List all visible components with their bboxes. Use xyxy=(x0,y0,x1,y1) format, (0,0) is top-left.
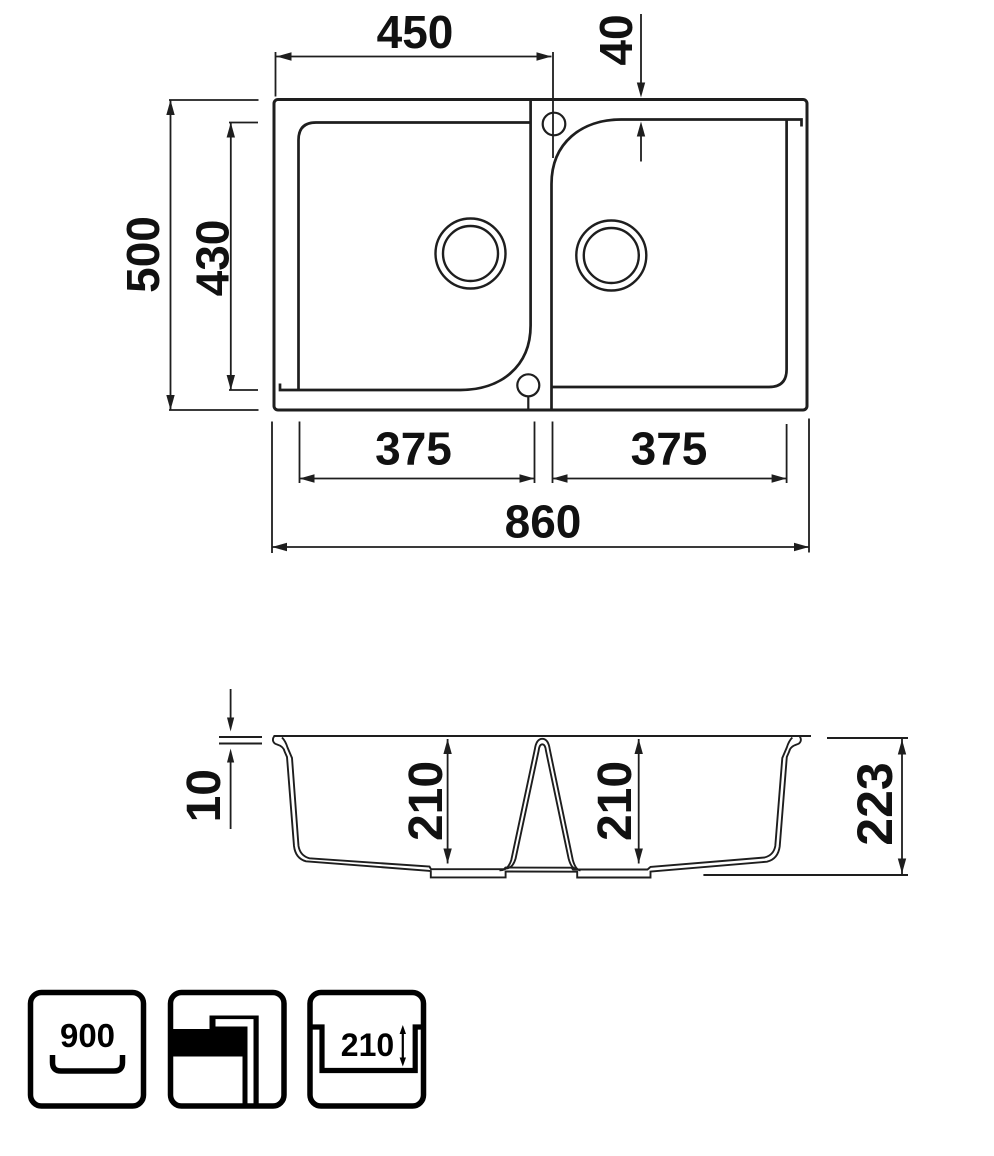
svg-text:900: 900 xyxy=(60,1017,115,1054)
svg-text:430: 430 xyxy=(187,220,239,297)
svg-text:40: 40 xyxy=(590,14,642,65)
svg-text:860: 860 xyxy=(505,496,582,548)
svg-text:450: 450 xyxy=(377,6,454,58)
svg-text:500: 500 xyxy=(117,216,169,293)
svg-text:223: 223 xyxy=(847,762,903,845)
svg-text:210: 210 xyxy=(341,1027,394,1063)
svg-text:375: 375 xyxy=(375,423,452,475)
svg-text:375: 375 xyxy=(631,423,708,475)
svg-text:10: 10 xyxy=(178,769,231,822)
svg-text:210: 210 xyxy=(589,761,642,841)
svg-text:210: 210 xyxy=(400,761,453,841)
